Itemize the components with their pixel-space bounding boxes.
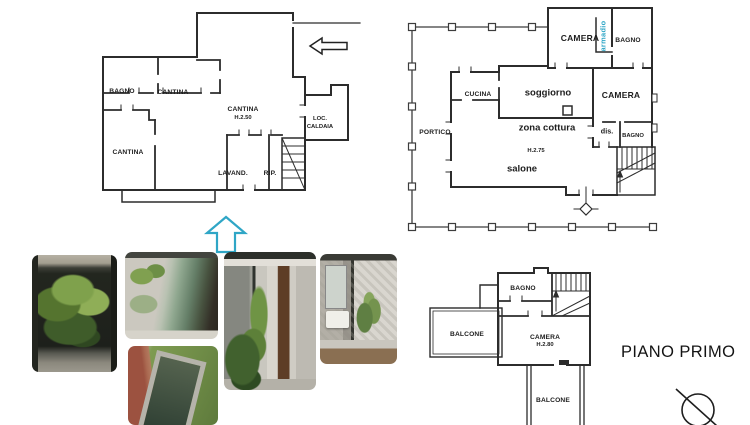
room-label-balcone-left: BALCONE — [450, 330, 484, 337]
up-arrow-icon — [204, 216, 248, 254]
room-label-cucina: CUCINA — [465, 90, 492, 97]
photo-courtyard-glass — [125, 252, 218, 339]
floor-title: PIANO PRIMO — [621, 343, 735, 362]
photo-detail — [136, 351, 206, 425]
floorplan-brochure: BAGNO CANTINA CANTINA H.2.50 LOC. CALDAI… — [0, 0, 750, 425]
room-height-cantina: H.2.50 — [234, 114, 251, 121]
room-label-zona-cottura: zona cottura — [519, 123, 575, 134]
room-label-bagno-right: BAGNO — [622, 132, 644, 139]
room-label-bagno-first: BAGNO — [510, 284, 536, 291]
photo-green-wall — [32, 255, 117, 372]
room-label-lavanderia: LAVAND. — [218, 169, 248, 176]
room-height-ground: H.2.75 — [527, 147, 544, 154]
room-label-portico: PORTICO — [419, 128, 450, 135]
room-label-soggiorno: soggiorno — [525, 88, 571, 99]
room-label-ripostiglio: RIP. — [264, 169, 277, 176]
room-label-camera-top: CAMERA — [561, 33, 600, 43]
room-label-armadio: armadio — [599, 20, 607, 51]
room-label-cantina-main: CANTINA — [227, 105, 258, 112]
left-arrow-icon — [310, 38, 347, 54]
room-label-balcone-bottom: BALCONE — [536, 396, 570, 403]
room-label-dis: dis. — [601, 127, 613, 135]
photo-patio-corridor — [224, 252, 316, 390]
room-label-bagno-top: BAGNO — [615, 36, 641, 43]
photo-bathroom-cactus — [320, 254, 397, 364]
room-label-camera-right: CAMERA — [602, 90, 641, 100]
room-label-bagno: BAGNO — [109, 87, 135, 94]
photo-detail — [325, 265, 347, 309]
room-label-camera-first: CAMERA — [530, 333, 560, 340]
photo-skylight-lawn — [128, 346, 218, 425]
room-label-loc-caldaia-2: CALDAIA — [307, 123, 333, 130]
ground-floor-plan — [403, 6, 688, 236]
room-label-loc-caldaia: LOC. — [313, 115, 327, 122]
room-height-camera: H.2.80 — [536, 341, 553, 348]
room-label-cantina-top: CANTINA — [157, 88, 188, 95]
room-label-salone: salone — [507, 164, 537, 175]
photo-detail — [326, 311, 349, 328]
north-indicator-icon — [666, 382, 736, 425]
room-label-cantina-left: CANTINA — [112, 148, 143, 155]
